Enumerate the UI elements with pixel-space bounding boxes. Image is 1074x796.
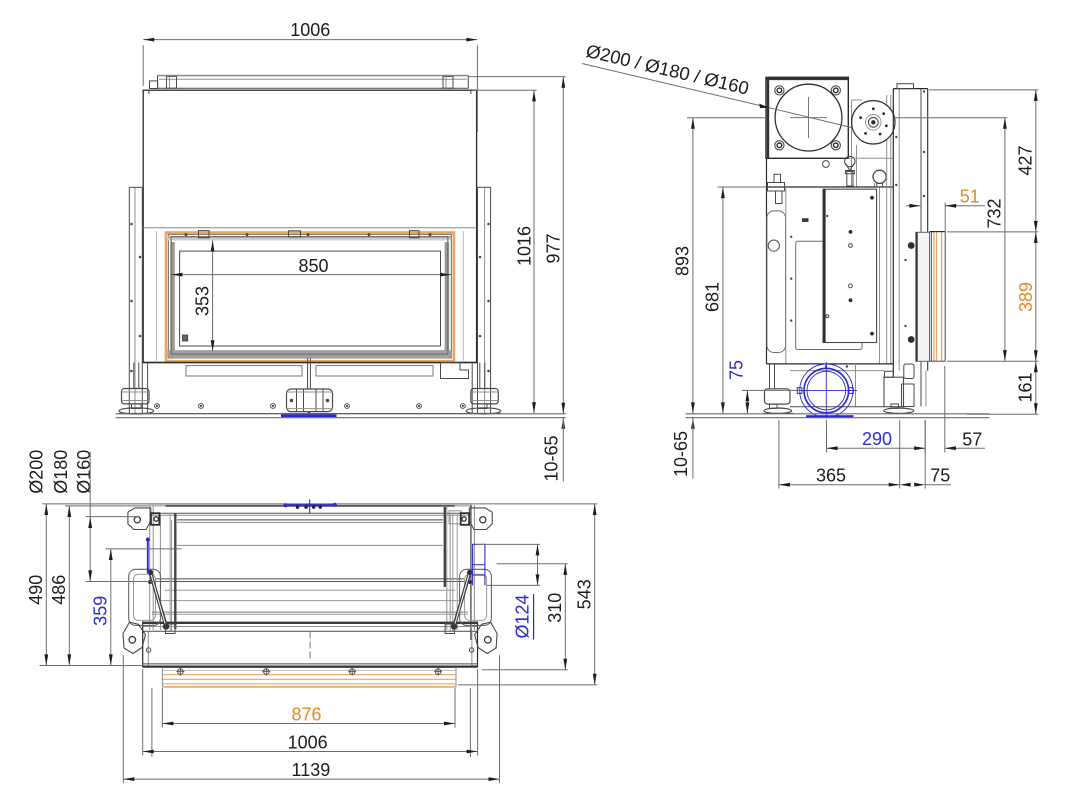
svg-text:1006: 1006 [288, 733, 328, 753]
svg-text:893: 893 [672, 246, 692, 276]
svg-text:427: 427 [1015, 145, 1035, 175]
svg-text:490: 490 [26, 575, 46, 605]
svg-text:543: 543 [574, 579, 594, 609]
svg-text:1016: 1016 [514, 226, 534, 266]
svg-text:290: 290 [862, 429, 892, 449]
svg-text:51: 51 [960, 187, 980, 207]
svg-text:389: 389 [1016, 282, 1036, 312]
svg-text:486: 486 [49, 575, 69, 605]
svg-text:161: 161 [1015, 372, 1035, 402]
svg-text:876: 876 [291, 704, 321, 724]
svg-text:732: 732 [985, 198, 1005, 228]
svg-text:75: 75 [727, 360, 747, 380]
svg-text:977: 977 [544, 233, 564, 263]
svg-text:681: 681 [702, 282, 722, 312]
svg-text:Ø180: Ø180 [51, 450, 71, 494]
svg-text:75: 75 [930, 466, 950, 486]
svg-text:850: 850 [298, 256, 328, 276]
svg-text:359: 359 [90, 596, 110, 626]
svg-text:Ø200: Ø200 [27, 450, 47, 494]
svg-text:365: 365 [816, 466, 846, 486]
svg-text:1139: 1139 [292, 760, 331, 780]
svg-text:310: 310 [545, 593, 565, 623]
svg-text:Ø124: Ø124 [512, 594, 532, 638]
svg-text:57: 57 [962, 429, 982, 449]
svg-text:10-65: 10-65 [541, 435, 561, 481]
svg-text:1006: 1006 [290, 20, 330, 40]
svg-text:Ø160: Ø160 [74, 450, 94, 494]
svg-text:353: 353 [192, 286, 212, 316]
svg-text:10-65: 10-65 [671, 431, 691, 477]
